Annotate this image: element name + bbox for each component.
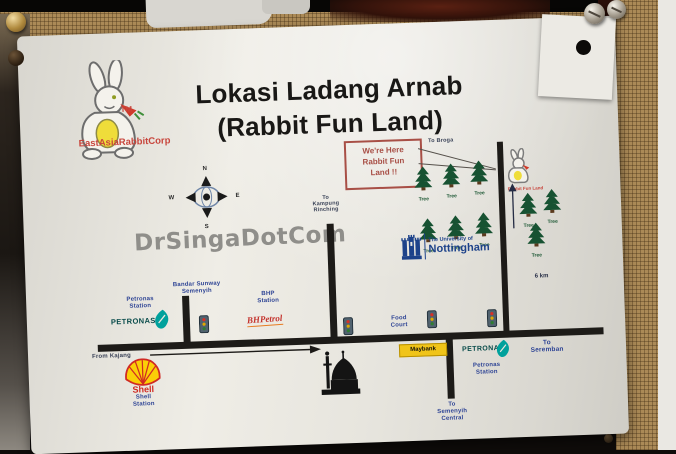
tree-icon: Tree (412, 166, 435, 203)
petronas-wordmark: PETRONAS (111, 316, 156, 327)
to-semenyih-central-line3: Central (428, 415, 476, 424)
traffic-light-icon (343, 317, 354, 335)
bandar-sunway-label: Bandar Sunway Semenyih (168, 280, 226, 296)
compass-e-label: E (235, 193, 239, 199)
tree-label: Tree (526, 252, 548, 259)
traffic-light-icon (199, 315, 210, 333)
tree-icon: Tree (541, 189, 564, 226)
traffic-light-icon (487, 309, 498, 327)
road-to-semenyih-central (446, 339, 455, 399)
paper-scrap-top-right (538, 14, 616, 100)
paper-right-edge (658, 0, 676, 450)
direction-to-seremban: To Seremban (523, 338, 571, 354)
to-seremban-line2: Seremban (523, 345, 571, 354)
tree-label: Tree (469, 190, 491, 197)
paper-scrap-top-left (145, 0, 272, 28)
compass-icon (182, 172, 232, 222)
food-court-label: Food Court (379, 315, 419, 330)
direction-to-kampung: To Kampung Rinching (301, 194, 352, 214)
pushpin-icon (8, 50, 24, 66)
here-marker-line3: Land !! (347, 166, 421, 180)
shell-line2: Station (124, 401, 164, 409)
tree-icon: Tree (440, 163, 463, 200)
map-sign: Lokasi Ladang Arnab (Rabbit Fun Land) TM… (17, 16, 629, 454)
direction-to-semenyih-central: To Semenyih Central (428, 401, 477, 424)
screw-icon (607, 0, 626, 19)
compass-w-label: W (169, 195, 175, 201)
bhp-logo: BHPetrol (247, 313, 283, 327)
petronas-right-label: Petronas Station (465, 362, 509, 378)
watermark-text: DrSingaDotCom (134, 222, 335, 257)
tree-label: Tree (413, 196, 435, 203)
direction-to-broga: To Broga (424, 137, 458, 145)
distance-arrow-icon (506, 183, 520, 229)
trademark-label: TM (120, 105, 132, 114)
distance-label: 6 km (526, 273, 556, 280)
screw-icon (584, 3, 605, 24)
maybank-logo: Maybank (399, 343, 447, 358)
petronas-drop-icon (496, 340, 511, 360)
pushpin-icon (6, 12, 26, 32)
to-kampung-line3: Rinching (301, 206, 351, 214)
road-branch-left (182, 296, 191, 343)
rabbit-marker-icon (500, 147, 539, 186)
bhp-label: BHP Station (244, 290, 292, 306)
tree-icon: Tree (468, 160, 491, 197)
university-name-line2: Nottingham (428, 242, 489, 255)
shell-station-label: Shell Station (123, 394, 163, 409)
petronas-right-line2: Station (465, 369, 509, 378)
mosque-icon (317, 349, 363, 399)
food-court-line2: Court (379, 322, 419, 330)
paper-scrap-top (262, 0, 310, 14)
bhp-line2: Station (244, 297, 292, 306)
paper-hole (576, 40, 591, 55)
compass-n-label: N (203, 166, 208, 172)
petronas-drop-icon (154, 309, 171, 332)
university-castle-icon (401, 234, 422, 262)
tree-icon: Tree (525, 222, 548, 259)
tree-label: Tree (441, 193, 463, 200)
pushpin-icon (604, 434, 613, 443)
traffic-light-icon (427, 310, 438, 328)
